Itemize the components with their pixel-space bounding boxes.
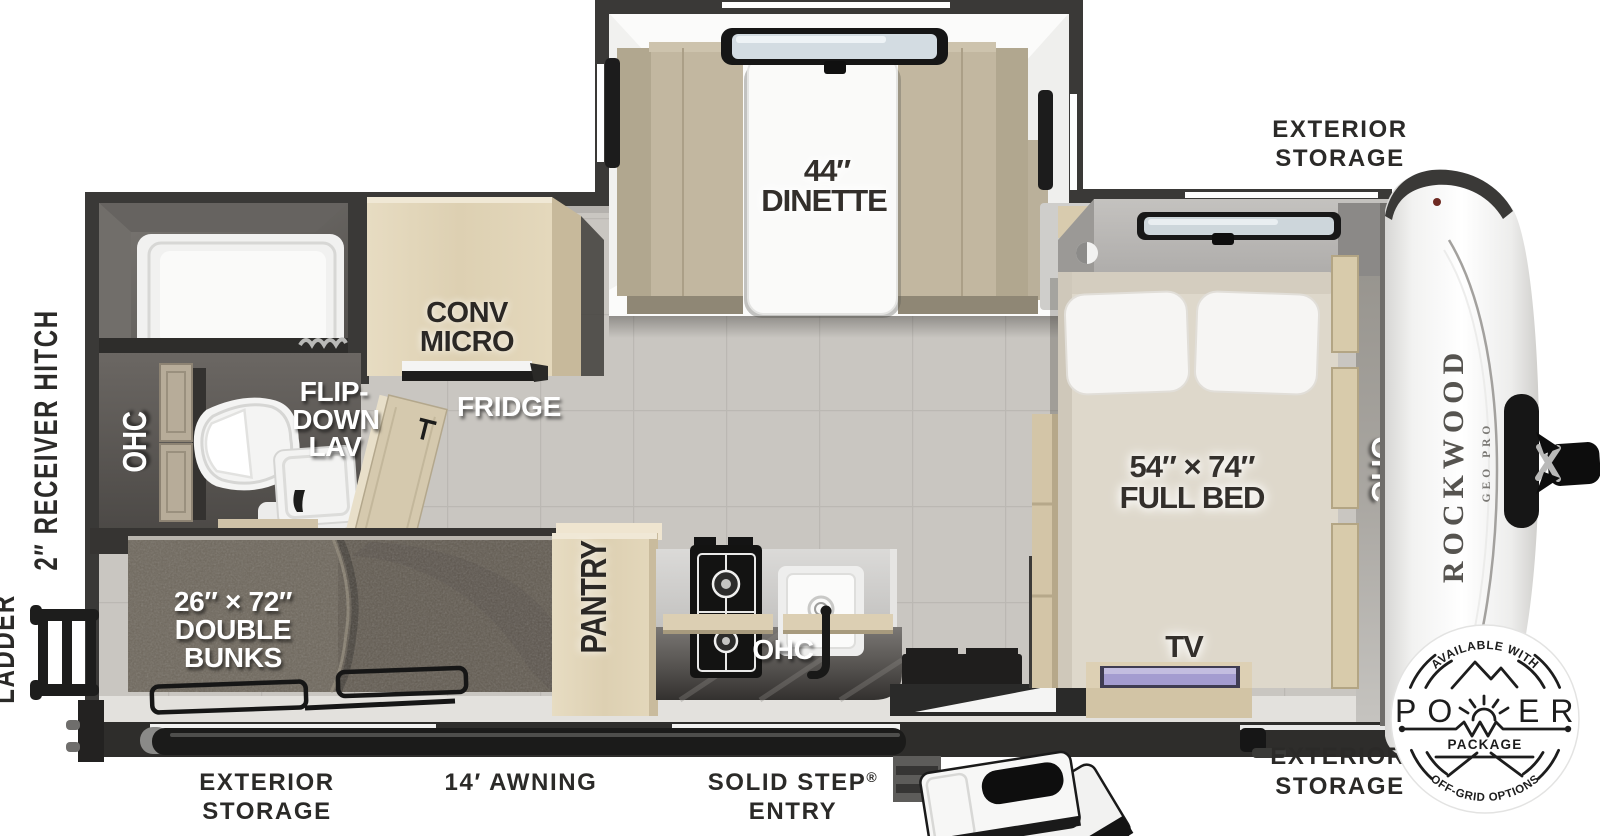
svg-text:FULL BED: FULL BED bbox=[1120, 480, 1265, 515]
svg-text:OHC: OHC bbox=[116, 411, 154, 472]
svg-text:BUNKS: BUNKS bbox=[184, 642, 282, 673]
svg-text:SOLID STEP®: SOLID STEP® bbox=[708, 769, 879, 796]
svg-text:TV: TV bbox=[1165, 629, 1204, 664]
svg-text:EXTERIOR: EXTERIOR bbox=[199, 769, 334, 796]
svg-text:54″ × 74″: 54″ × 74″ bbox=[1130, 449, 1256, 484]
svg-text:FLIP-: FLIP- bbox=[300, 376, 369, 407]
svg-text:OHC: OHC bbox=[752, 634, 813, 665]
svg-text:MICRO: MICRO bbox=[420, 326, 514, 358]
svg-text:14′ AWNING: 14′ AWNING bbox=[445, 769, 598, 796]
svg-text:EXTERIOR: EXTERIOR bbox=[1270, 743, 1405, 770]
svg-text:2″ RECEIVER HITCH: 2″ RECEIVER HITCH bbox=[29, 309, 65, 570]
svg-text:ENTRY: ENTRY bbox=[749, 798, 837, 825]
svg-text:PO: PO bbox=[1395, 693, 1463, 729]
svg-text:EXTERIOR: EXTERIOR bbox=[1272, 116, 1407, 143]
svg-text:ROCKWOOD: ROCKWOOD bbox=[1437, 347, 1470, 583]
svg-text:ER: ER bbox=[1518, 693, 1584, 729]
svg-text:STORAGE: STORAGE bbox=[202, 798, 331, 825]
svg-text:PANTRY: PANTRY bbox=[573, 540, 614, 654]
svg-text:CONV: CONV bbox=[426, 297, 509, 329]
svg-text:DINETTE: DINETTE bbox=[761, 183, 887, 218]
svg-text:DOUBLE: DOUBLE bbox=[175, 614, 291, 645]
svg-text:STORAGE: STORAGE bbox=[1275, 773, 1404, 800]
svg-text:LADDER: LADDER bbox=[0, 594, 21, 704]
svg-text:FRIDGE: FRIDGE bbox=[457, 391, 561, 422]
svg-text:PACKAGE: PACKAGE bbox=[1448, 737, 1523, 752]
svg-text:GEO PRO: GEO PRO bbox=[1481, 422, 1493, 503]
svg-text:STORAGE: STORAGE bbox=[1275, 145, 1404, 172]
svg-text:LAV: LAV bbox=[308, 431, 362, 462]
svg-text:26″ × 72″: 26″ × 72″ bbox=[174, 586, 292, 617]
